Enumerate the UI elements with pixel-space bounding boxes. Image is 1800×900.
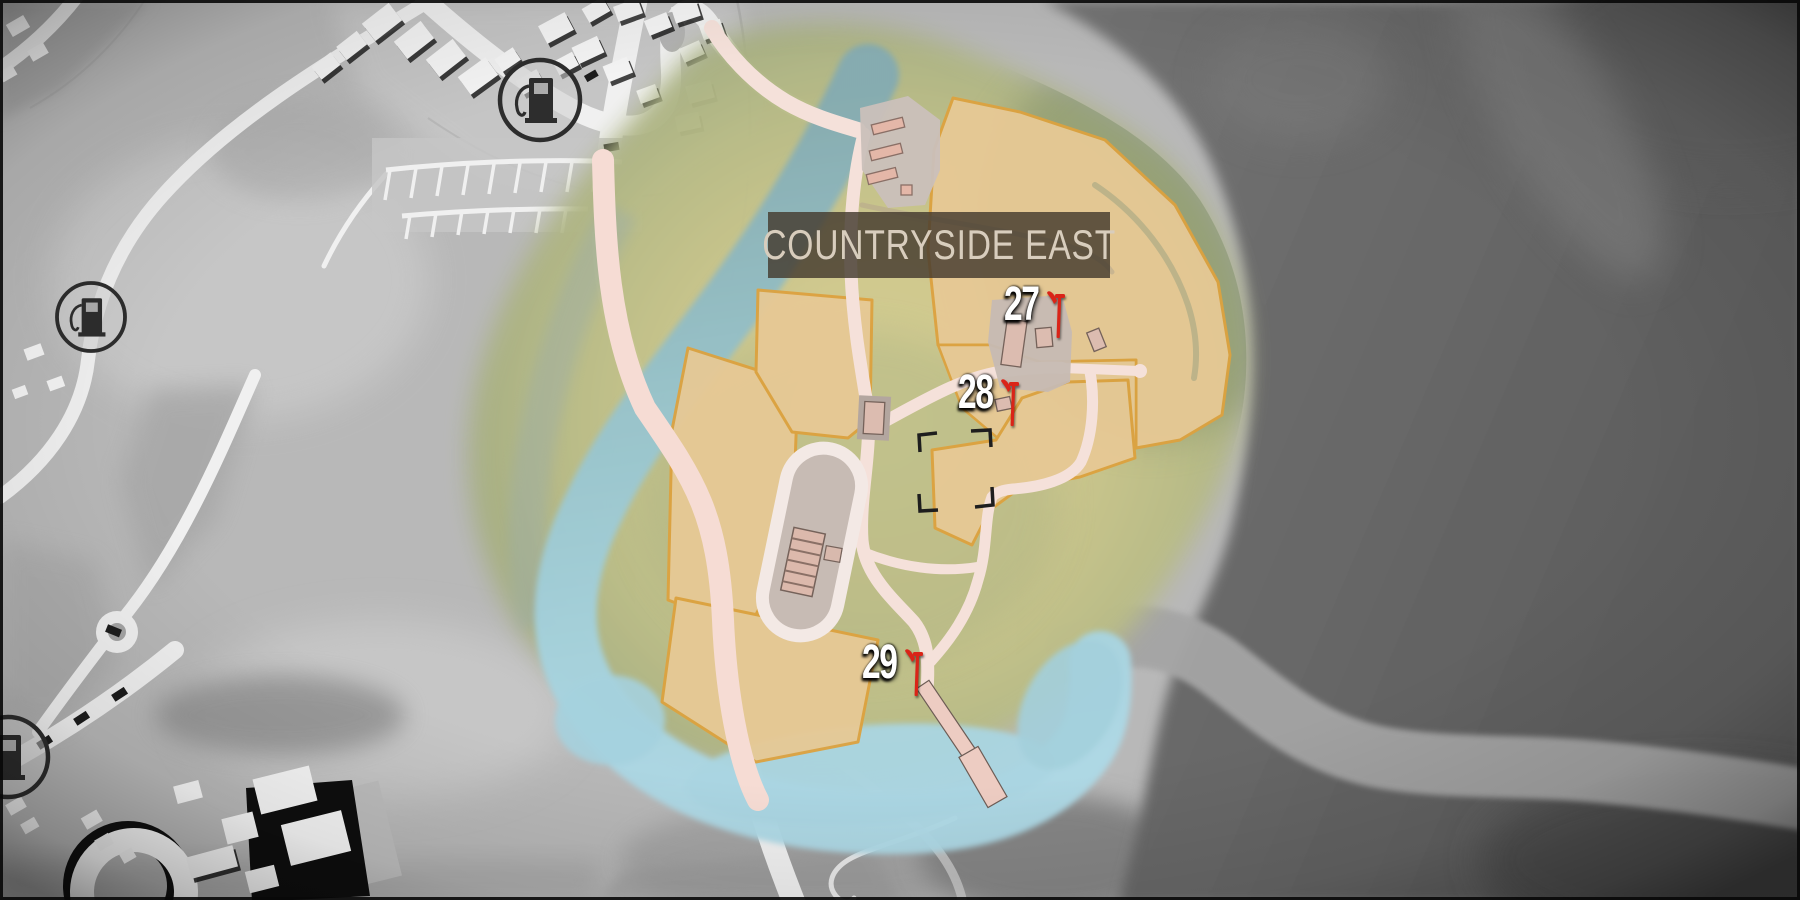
location-banner-label: COUNTRYSIDE EAST <box>762 221 1116 269</box>
flag-icon <box>905 646 929 700</box>
marker-number: 27 <box>1004 286 1039 323</box>
collectible-marker-29[interactable]: 29 <box>862 644 929 700</box>
collectible-marker-28[interactable]: 28 <box>958 374 1025 430</box>
flag-icon <box>1047 288 1071 342</box>
game-map-screen: COUNTRYSIDE EAST 27 28 29 <box>0 0 1800 900</box>
flag-icon <box>1001 376 1025 430</box>
collectible-marker-27[interactable]: 27 <box>1004 286 1071 342</box>
marker-number: 29 <box>862 644 897 681</box>
marker-number: 28 <box>958 374 993 411</box>
map-canvas[interactable] <box>0 0 1800 900</box>
location-banner: COUNTRYSIDE EAST <box>768 212 1110 278</box>
vignette <box>0 0 1800 900</box>
